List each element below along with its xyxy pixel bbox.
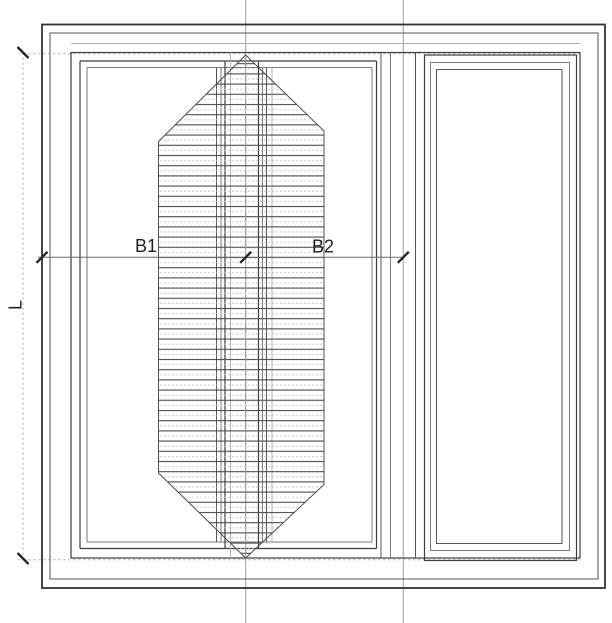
cad-drawing-canvas: B1 B2 L (0, 0, 612, 623)
right-panel-outer-rect (425, 55, 577, 561)
right-panel (425, 55, 577, 561)
dimension-label-b2: B2 (312, 237, 334, 257)
dimension-tick (18, 47, 29, 58)
mullion (381, 53, 416, 559)
dimension-label-l: L (6, 300, 26, 310)
hatch-hexagon (159, 55, 325, 558)
window-elevation-drawing: B1 B2 L (0, 0, 612, 623)
right-panel-inner-rect (437, 70, 563, 544)
right-panel-mid-rect (431, 63, 570, 551)
frame-opening-rect (71, 53, 580, 559)
dimension-label-b1: B1 (135, 236, 157, 256)
glazing-hatch (159, 55, 325, 558)
